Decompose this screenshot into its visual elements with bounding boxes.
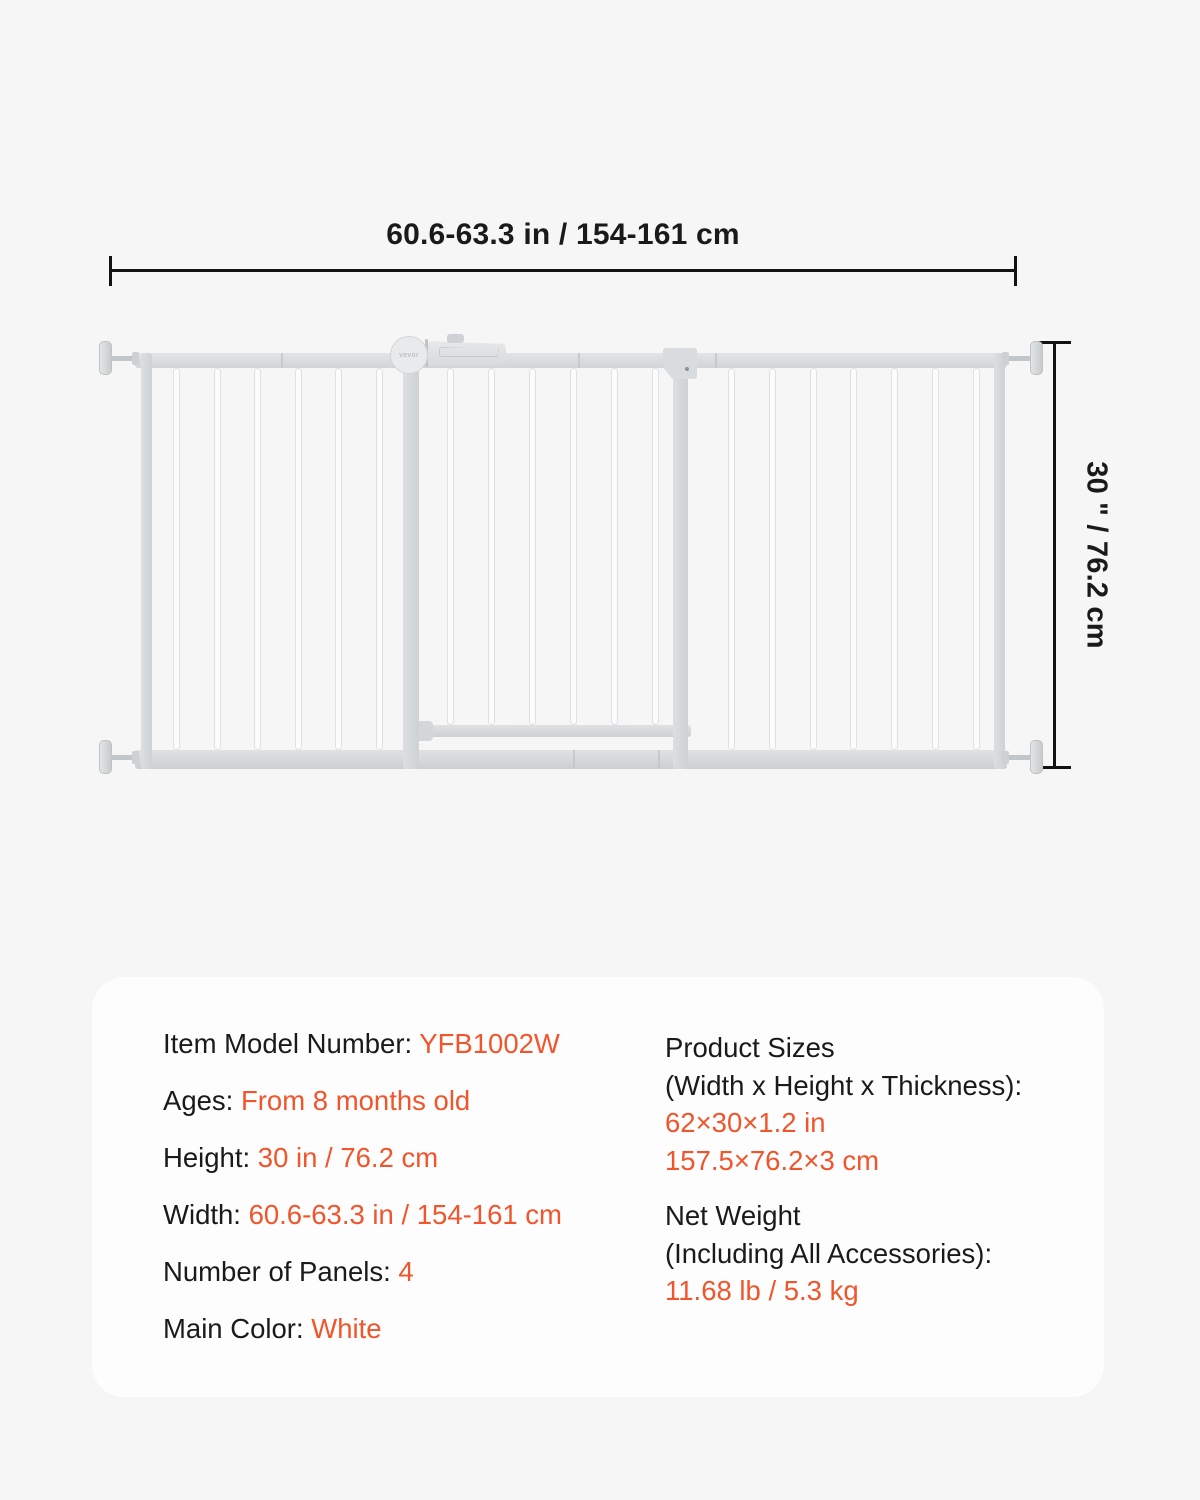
gate-bar [810,368,817,750]
gate-bar [611,368,618,725]
knob-nut [1002,352,1009,365]
spec-value: 157.5×76.2×3 cm [665,1142,1022,1180]
spec-label: Item Model Number: [163,1028,419,1059]
product-dimension-page: 60.6-63.3 in / 154-161 cm 30 " / 76.2 cm [0,0,1200,1500]
spec-right-column: Product Sizes (Width x Height x Thicknes… [665,1029,1022,1310]
gate-latch-post [403,347,419,769]
knob-nut [1002,751,1009,764]
gate-bar [295,368,302,750]
gate-bar [214,368,221,750]
spec-value: 60.6-63.3 in / 154-161 cm [249,1199,562,1230]
spec-label: Net Weight [665,1197,1022,1235]
gate-bar [529,368,536,725]
gate-bar [728,368,735,750]
wall-pad [1030,740,1043,774]
gate-bar [335,368,342,750]
spec-row-color: Main Color: White [163,1314,562,1344]
spec-value: 4 [398,1256,413,1287]
spec-row-ages: Ages: From 8 months old [163,1086,562,1116]
spec-label: Width: [163,1199,249,1230]
knob-nut [132,751,139,764]
product-spec-card: Item Model Number: YFB1002W Ages: From 8… [92,977,1104,1397]
width-dimension-label: 60.6-63.3 in / 154-161 cm [110,218,1016,252]
spec-row-height: Height: 30 in / 76.2 cm [163,1143,562,1173]
knob-nut [132,352,139,365]
gate-latch-hub: vevor [390,336,428,374]
spec-row-model-number: Item Model Number: YFB1002W [163,1029,562,1059]
width-dimension-line [110,269,1016,272]
gate-right-end-post [994,353,1005,769]
spec-label: Ages: [163,1085,241,1116]
spec-block-product-sizes: Product Sizes (Width x Height x Thicknes… [665,1029,1022,1179]
gate-bar [173,368,180,750]
spec-label: (Width x Height x Thickness): [665,1067,1022,1105]
width-dimension-tick-left [109,256,112,286]
spec-block-net-weight: Net Weight (Including All Accessories): … [665,1197,1022,1310]
gate-hinge-bracket [663,348,697,379]
gate-bar [769,368,776,750]
gate-bar [447,368,454,725]
width-dimension-tick-right [1014,256,1017,286]
vevor-logo: vevor [399,352,419,359]
gate-bar [973,368,980,750]
spec-value: 11.68 lb / 5.3 kg [665,1272,1022,1310]
spec-value: From 8 months old [241,1085,470,1116]
gate-bar [570,368,577,725]
wall-pad [1030,341,1043,375]
spec-value: 30 in / 76.2 cm [258,1142,438,1173]
spec-label: (Including All Accessories): [665,1235,1022,1273]
gate-hinge-screw [685,367,689,371]
spec-value: YFB1002W [419,1028,560,1059]
gate-rail-seam [658,750,660,769]
gate-bar [254,368,261,750]
height-dimension-label: 30 " / 76.2 cm [1080,461,1113,648]
gate-rail-seam [281,353,283,368]
spec-label: Main Color: [163,1313,311,1344]
gate-bar [850,368,857,750]
gate-rail-seam [578,353,580,368]
gate-hinge-post [673,353,688,769]
gate-top-rail [135,353,1007,368]
gate-bar [652,368,659,725]
gate-left-end-post [141,353,152,769]
gate-panel-right-bars [728,368,980,750]
gate-bottom-rail [135,750,1007,769]
gate-bar [376,368,383,750]
spec-row-panels: Number of Panels: 4 [163,1257,562,1287]
gate-panel-left-bars [173,368,383,750]
spec-label: Height: [163,1142,258,1173]
spec-label: Product Sizes [665,1029,1022,1067]
gate-rail-seam [715,353,717,368]
height-dimension-line [1053,343,1056,767]
gate-latch-button [447,334,464,343]
knob-rod [1007,755,1031,760]
spec-value: 62×30×1.2 in [665,1104,1022,1142]
spec-value: White [311,1313,381,1344]
spec-row-width: Width: 60.6-63.3 in / 154-161 cm [163,1200,562,1230]
spec-label: Number of Panels: [163,1256,398,1287]
spec-left-column: Item Model Number: YFB1002W Ages: From 8… [163,1029,562,1344]
gate-bar [891,368,898,750]
gate-door-bars [447,368,659,725]
gate-bar [488,368,495,725]
baby-gate-illustration: vevor [95,335,1045,780]
gate-bar [932,368,939,750]
gate-door-bottom-rail [419,725,691,737]
knob-rod [1007,356,1031,361]
gate-rail-seam [573,750,575,769]
